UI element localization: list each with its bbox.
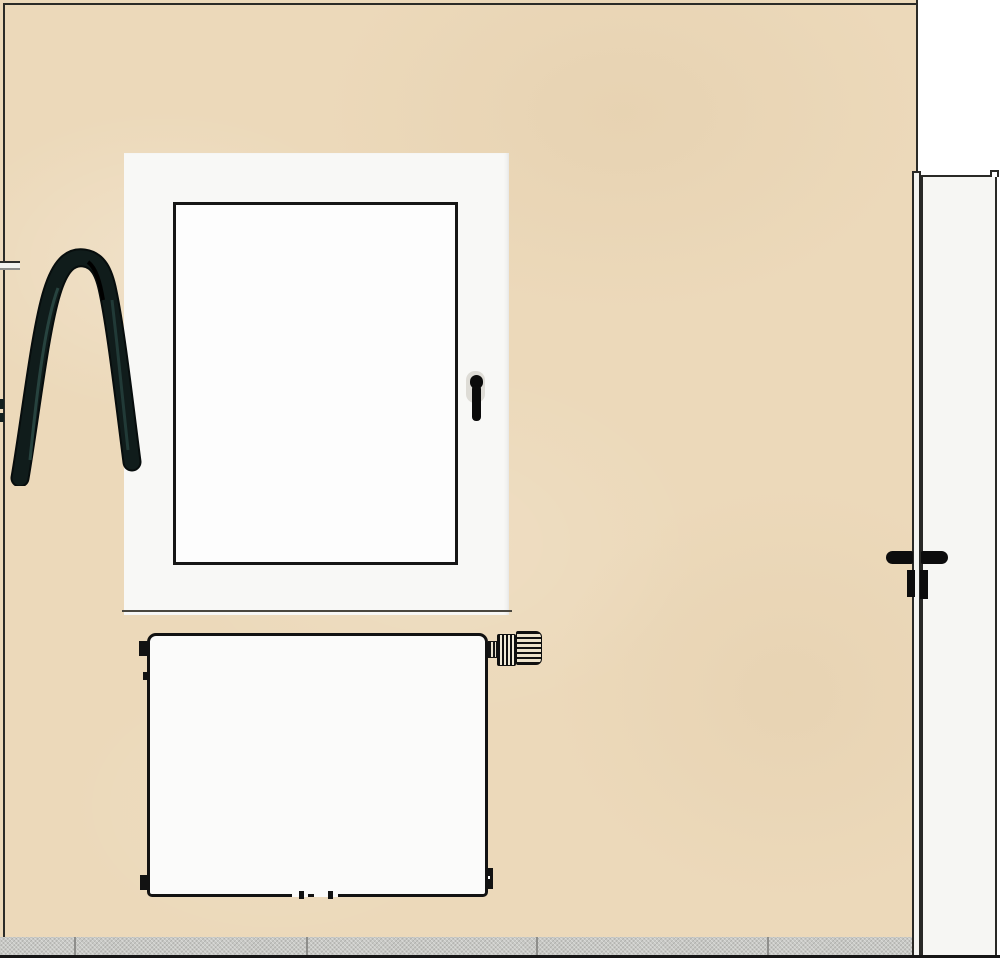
- radiator-foot: [328, 891, 333, 899]
- tile-grout-line: [306, 937, 308, 955]
- door-handle[interactable]: [886, 551, 913, 564]
- door-frame-notch: [990, 170, 999, 177]
- radiator-bracket: [143, 672, 147, 680]
- tile-grout-line: [74, 937, 76, 955]
- door-lock-plate: [920, 570, 928, 599]
- tile-grout-line: [767, 937, 769, 955]
- towel-edge-fragment: [0, 413, 4, 422]
- door[interactable]: [921, 175, 997, 958]
- radiator-bracket: [139, 641, 148, 656]
- hanging-towel[interactable]: [0, 246, 160, 486]
- radiator-foot-notch: [314, 893, 338, 897]
- tiled-floor: [0, 937, 913, 955]
- room-elevation-viewport: [0, 0, 1000, 958]
- door-handle[interactable]: [921, 551, 948, 564]
- door-lock-plate: [907, 570, 915, 597]
- towel-body: [20, 258, 132, 478]
- towel-edge-fragment: [0, 399, 4, 409]
- window-handle[interactable]: [472, 385, 481, 421]
- radiator-valve-knurl: [497, 634, 516, 666]
- tile-grout-line: [536, 937, 538, 955]
- radiator[interactable]: [147, 633, 488, 897]
- door-frame: [912, 171, 921, 958]
- window-sill-line: [122, 610, 512, 612]
- window-sash-glass[interactable]: [173, 202, 458, 565]
- radiator-bracket: [140, 875, 148, 890]
- radiator-valve-connector: [488, 641, 497, 658]
- radiator-bracket: [485, 868, 493, 889]
- thermostatic-valve-head[interactable]: [516, 631, 542, 665]
- radiator-foot: [299, 891, 304, 899]
